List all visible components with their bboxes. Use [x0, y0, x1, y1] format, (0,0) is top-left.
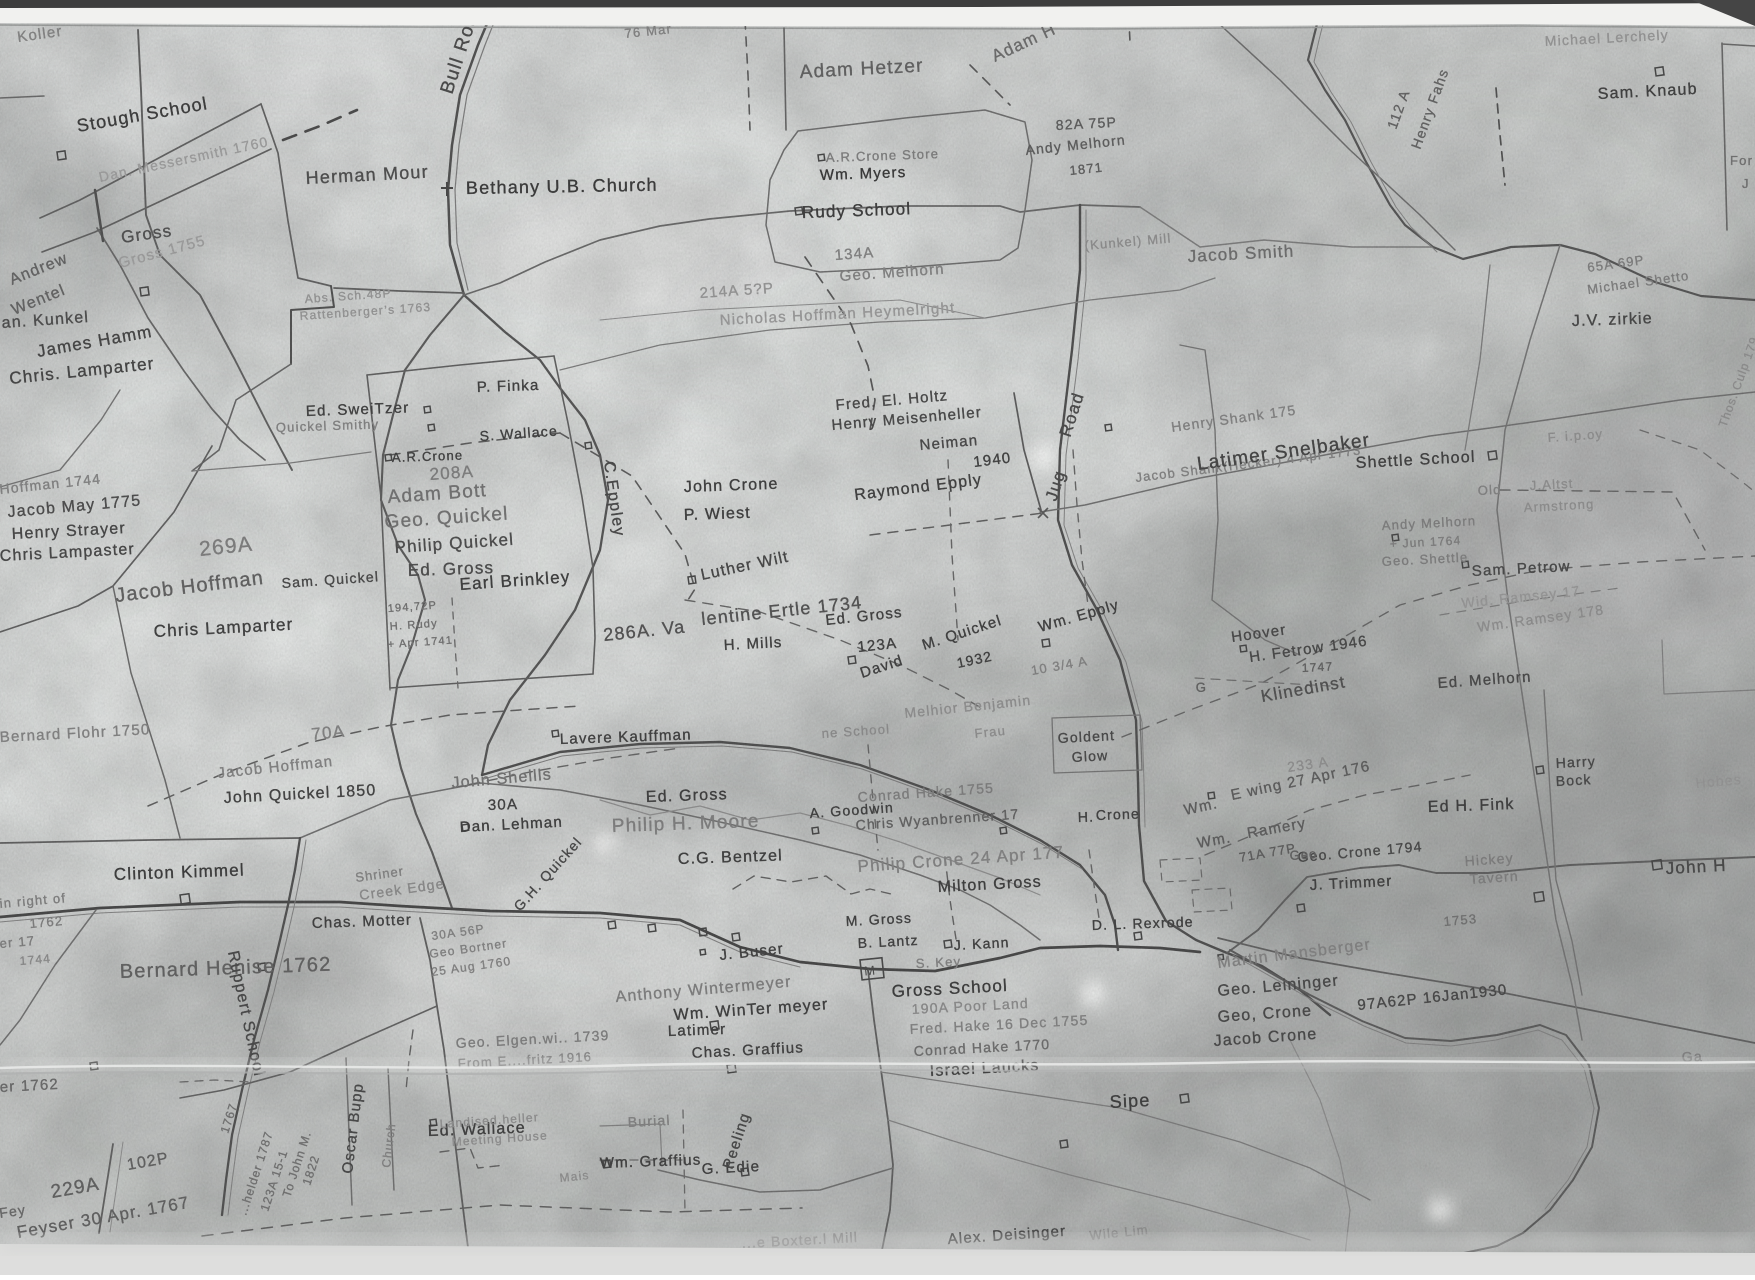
svg-text:1753: 1753 [1443, 911, 1478, 929]
svg-text:Hickey: Hickey [1464, 850, 1514, 869]
svg-text:A.R.Crone: A.R.Crone [392, 448, 464, 465]
svg-text:H. Mills: H. Mills [723, 634, 783, 654]
svg-text:Rudy School: Rudy School [801, 199, 911, 222]
svg-text:J.V. zirkie: J.V. zirkie [1572, 310, 1654, 330]
svg-text:Ed. Gross: Ed. Gross [646, 786, 728, 806]
svg-text:G: G [1195, 679, 1207, 695]
svg-text:S. Key: S. Key [915, 954, 961, 971]
svg-text:30A: 30A [488, 796, 519, 814]
svg-text:70A: 70A [310, 722, 346, 744]
svg-text:B. Lantz: B. Lantz [857, 932, 919, 951]
svg-text:Harry: Harry [1555, 753, 1596, 771]
svg-text:Goldent: Goldent [1057, 727, 1115, 746]
svg-text:P. Finka: P. Finka [477, 377, 540, 396]
svg-text:P. Wiest: P. Wiest [684, 505, 752, 524]
svg-text:Bock: Bock [1555, 771, 1592, 789]
svg-text:Ed H. Fink: Ed H. Fink [1428, 796, 1515, 816]
svg-text:Geo: Geo [1289, 846, 1318, 863]
svg-text:M: M [863, 963, 875, 979]
svg-text:Old: Old [1477, 482, 1502, 498]
svg-text:J: J [1742, 176, 1750, 191]
svg-text:Burial: Burial [627, 1112, 671, 1130]
svg-text:H.: H. [1078, 808, 1095, 825]
svg-text:134A: 134A [834, 244, 875, 264]
svg-text:Glow: Glow [1071, 747, 1108, 765]
svg-text:John H: John H [1665, 856, 1727, 878]
svg-text:82A 75P: 82A 75P [1055, 114, 1117, 133]
svg-text:Bethany U.B. Church: Bethany U.B. Church [466, 175, 658, 198]
svg-text:1744: 1744 [19, 951, 52, 968]
svg-text:Wm. Graffius: Wm. Graffius [600, 1151, 702, 1172]
svg-text:Latimer: Latimer [668, 1021, 727, 1040]
svg-text:For: For [1730, 153, 1753, 168]
svg-text:Sipe: Sipe [1109, 1090, 1151, 1112]
svg-text:1762: 1762 [29, 913, 64, 931]
svg-text:John Crone: John Crone [684, 476, 779, 496]
svg-text:er 1762: er 1762 [0, 1076, 59, 1096]
svg-text:J.Altst: J.Altst [1529, 476, 1574, 493]
svg-text:Crone: Crone [1096, 805, 1141, 823]
svg-text:Chas. Motter: Chas. Motter [312, 912, 413, 932]
svg-text:Tavern: Tavern [1469, 868, 1519, 887]
svg-text:1747: 1747 [1301, 659, 1333, 675]
svg-text:er 17: er 17 [0, 933, 36, 951]
svg-text:J. Kann: J. Kann [953, 934, 1010, 953]
svg-text:Wm. Myers: Wm. Myers [820, 164, 907, 184]
